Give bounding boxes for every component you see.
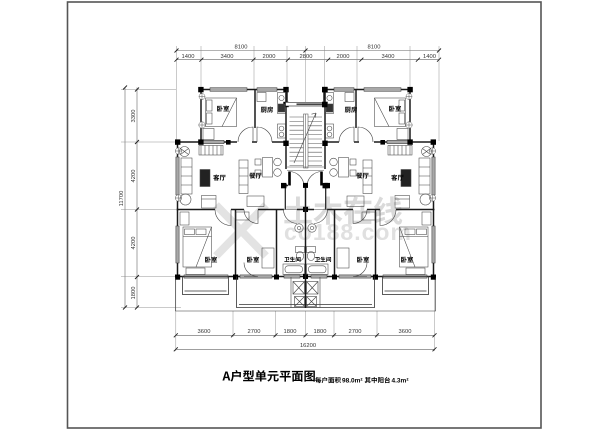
svg-text:16200: 16200 — [300, 343, 316, 349]
svg-text:2000: 2000 — [263, 54, 276, 60]
svg-text:1800: 1800 — [284, 329, 297, 335]
svg-text:3400: 3400 — [221, 54, 234, 60]
svg-text:2700: 2700 — [248, 329, 261, 335]
svg-text:1800: 1800 — [131, 287, 137, 300]
svg-text:co188.com: co188.com — [284, 219, 412, 245]
svg-text:1800: 1800 — [314, 329, 327, 335]
svg-text:3600: 3600 — [198, 329, 211, 335]
svg-text:4200: 4200 — [131, 237, 137, 250]
svg-text:2000: 2000 — [337, 54, 350, 60]
svg-text:2800: 2800 — [300, 54, 313, 60]
svg-text:4.3m²: 4.3m² — [392, 378, 410, 385]
svg-text:4200: 4200 — [131, 170, 137, 183]
svg-text:98.0m²: 98.0m² — [342, 378, 363, 385]
svg-text:3300: 3300 — [131, 110, 137, 123]
svg-text:1400: 1400 — [182, 54, 195, 60]
svg-text:11700: 11700 — [119, 191, 125, 207]
svg-text:3400: 3400 — [382, 54, 395, 60]
svg-text:2700: 2700 — [349, 329, 362, 335]
svg-text:8100: 8100 — [235, 45, 248, 51]
svg-text:8100: 8100 — [368, 45, 381, 51]
svg-text:3600: 3600 — [399, 329, 412, 335]
svg-text:1400: 1400 — [423, 54, 436, 60]
